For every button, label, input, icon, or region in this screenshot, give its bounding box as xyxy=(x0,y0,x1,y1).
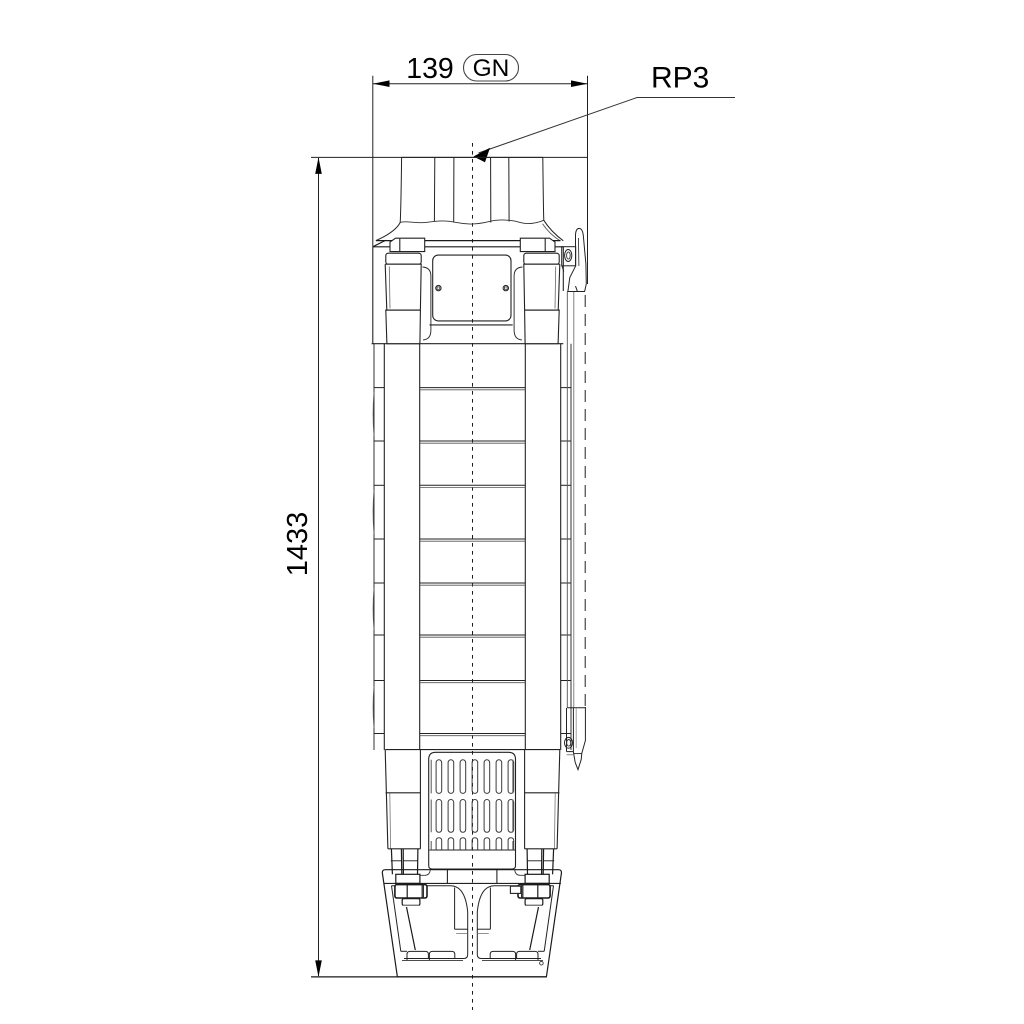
svg-text:RP3: RP3 xyxy=(651,62,709,95)
svg-text:1433: 1433 xyxy=(282,512,314,577)
svg-text:GN: GN xyxy=(473,55,510,82)
svg-text:139: 139 xyxy=(406,53,454,85)
